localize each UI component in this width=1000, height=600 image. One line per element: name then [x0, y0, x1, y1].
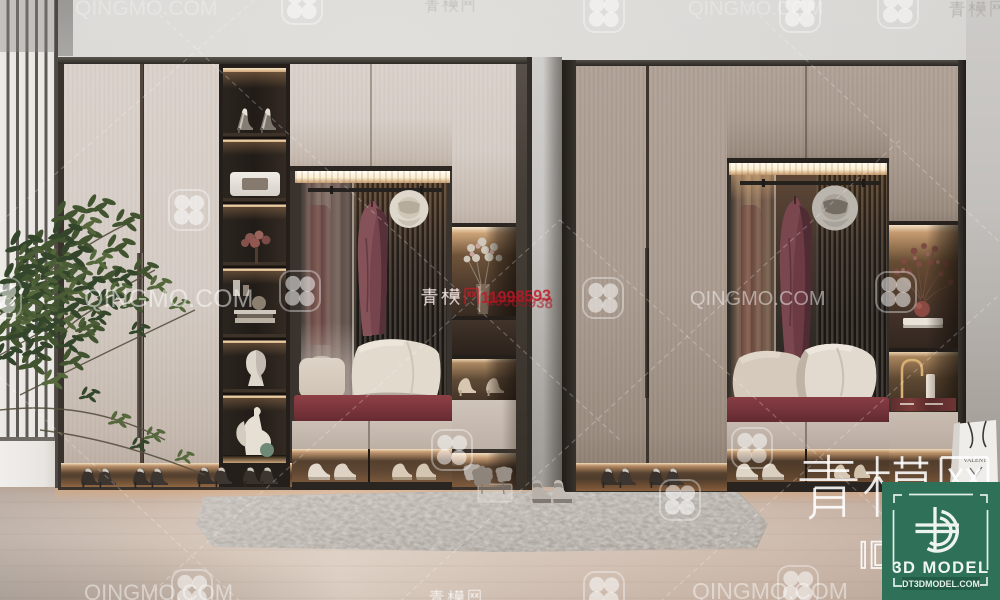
svg-text:QINGMO.COM: QINGMO.COM	[75, 0, 217, 20]
svg-text:QINGMO.COM: QINGMO.COM	[84, 580, 233, 600]
svg-text:QINGMO.COM: QINGMO.COM	[688, 0, 824, 20]
svg-text:QINGMO.COM: QINGMO.COM	[690, 288, 826, 310]
svg-text:DT3DMODEL.COM: DT3DMODEL.COM	[902, 579, 980, 589]
svg-text:QINGMO.COM: QINGMO.COM	[84, 285, 253, 313]
svg-text:3D MODEL: 3D MODEL	[892, 559, 989, 577]
svg-text:QINGMO.COM: QINGMO.COM	[692, 578, 848, 600]
svg-text:19985938: 19985938	[486, 292, 554, 312]
